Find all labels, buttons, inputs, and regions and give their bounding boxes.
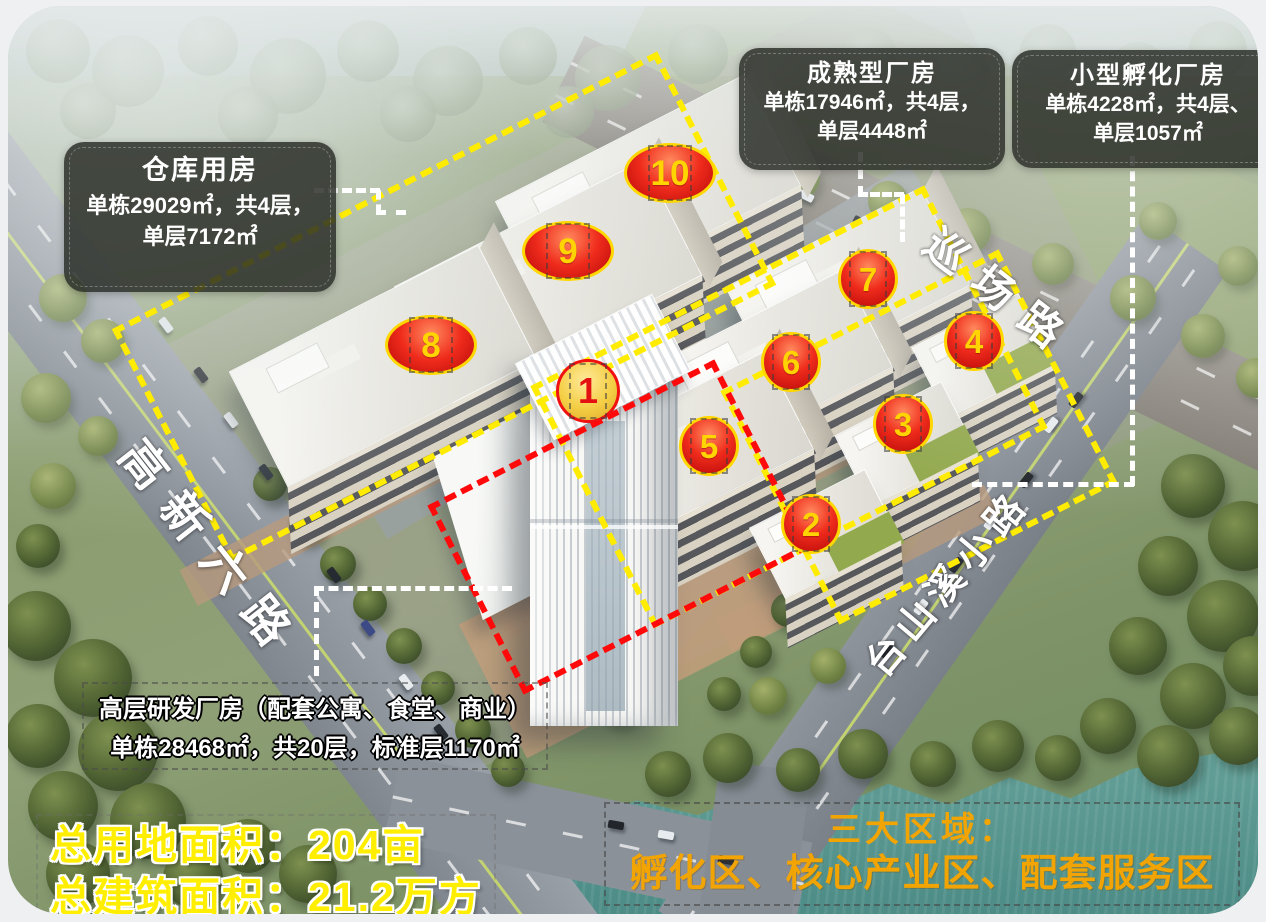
callout-connector xyxy=(314,586,512,591)
badge-number: 4 xyxy=(965,325,983,358)
tree xyxy=(26,19,90,83)
badge-number: 3 xyxy=(894,408,912,441)
zones-list: 孵化区、核心产业区、配套服务区 xyxy=(629,851,1214,899)
callout-connector xyxy=(314,586,319,676)
tree xyxy=(380,86,436,142)
badge-number: 7 xyxy=(859,263,877,296)
project-summary: 总用地面积：204亩 总建筑面积：21.2万方 xyxy=(36,814,496,914)
tree xyxy=(810,648,846,684)
badge-building-8: 8 xyxy=(385,315,477,375)
callout-line: 单栋28468㎡，共20层，标准层1170㎡ xyxy=(84,728,546,763)
tree xyxy=(668,24,728,84)
badge-building-5: 5 xyxy=(679,416,739,476)
zones-title: 三大区域： xyxy=(827,810,1017,851)
callout-connector xyxy=(900,194,905,242)
callout-title: 成熟型厂房 xyxy=(747,58,997,89)
callout-line: 单栋17946㎡，共4层， xyxy=(747,89,997,117)
tree xyxy=(499,27,557,85)
tree xyxy=(16,524,60,568)
tree xyxy=(1035,735,1081,781)
tree xyxy=(30,463,76,509)
tree xyxy=(703,733,753,783)
callout-title: 仓库用房 xyxy=(72,152,328,190)
callout-connector xyxy=(972,482,1134,487)
callout-line: 单栋4228㎡，共4层、 xyxy=(1020,91,1258,119)
callout-line: 高层研发厂房（配套公寓、食堂、商业） xyxy=(84,689,546,724)
tree xyxy=(1032,243,1074,285)
tree xyxy=(78,416,118,456)
tree xyxy=(910,741,956,787)
tree xyxy=(1138,536,1198,596)
callout-line: 单栋29029㎡，共4层， xyxy=(72,190,328,221)
tree xyxy=(776,748,820,792)
badge-number: 8 xyxy=(421,328,440,363)
badge-number: 10 xyxy=(651,156,690,191)
callout-connector xyxy=(1130,156,1135,486)
tree xyxy=(1137,725,1199,787)
callout-title: 小型孵化厂房 xyxy=(1020,60,1258,91)
tree xyxy=(21,373,71,423)
aerial-masterplan-rendering: 高新六路 巡场路 台山溪小路 1 2 3 4 5 6 7 8 9 10 xyxy=(8,6,1258,914)
tree xyxy=(838,729,888,779)
tree xyxy=(8,704,70,768)
callout-small-incubator: 小型孵化厂房 单栋4228㎡，共4层、 单层1057㎡ xyxy=(1012,50,1258,168)
badge-number: 1 xyxy=(578,373,598,409)
tree xyxy=(8,591,71,661)
tree xyxy=(1109,617,1167,675)
total-land-area: 总用地面积：204亩 xyxy=(50,820,482,872)
tree xyxy=(972,720,1024,772)
three-zones-note: 三大区域： 孵化区、核心产业区、配套服务区 xyxy=(604,802,1240,906)
tree xyxy=(1161,454,1225,518)
tree xyxy=(178,16,238,76)
callout-rd-tower: 高层研发厂房（配套公寓、食堂、商业） 单栋28468㎡，共20层，标准层1170… xyxy=(82,682,548,770)
total-floor-area: 总建筑面积：21.2万方 xyxy=(50,872,482,914)
badge-number: 5 xyxy=(700,430,718,463)
badge-building-2: 2 xyxy=(781,494,841,554)
badge-building-3: 3 xyxy=(873,394,933,454)
tree xyxy=(353,587,387,621)
badge-building-6: 6 xyxy=(761,332,821,392)
tree xyxy=(1218,246,1258,286)
callout-connector xyxy=(858,192,904,197)
tree xyxy=(218,86,278,146)
tree xyxy=(1181,314,1225,358)
callout-connector xyxy=(376,210,406,215)
badge-number: 6 xyxy=(782,346,800,379)
tree xyxy=(337,20,399,82)
badge-building-4: 4 xyxy=(944,311,1004,371)
tree xyxy=(1209,707,1258,765)
callout-line: 单层1057㎡ xyxy=(1020,120,1258,148)
tree xyxy=(1208,501,1258,571)
tree xyxy=(645,751,691,797)
badge-number: 2 xyxy=(802,508,820,541)
badge-building-1: 1 xyxy=(556,359,620,423)
tree xyxy=(1139,202,1177,240)
callout-warehouse: 仓库用房 单栋29029㎡，共4层， 单层7172㎡ xyxy=(64,142,336,292)
tree xyxy=(386,628,422,664)
tree xyxy=(1080,698,1136,754)
tree xyxy=(749,677,787,715)
callout-mature-factory: 成熟型厂房 单栋17946㎡，共4层， 单层4448㎡ xyxy=(739,48,1005,170)
callout-line: 单层4448㎡ xyxy=(747,118,997,146)
tree xyxy=(60,83,116,139)
badge-number: 9 xyxy=(558,234,577,269)
tree xyxy=(707,677,741,711)
badge-building-9: 9 xyxy=(522,221,614,281)
callout-line: 单层7172㎡ xyxy=(72,221,328,252)
badge-building-7: 7 xyxy=(838,249,898,309)
tree xyxy=(740,636,772,668)
badge-building-10: 10 xyxy=(624,143,716,203)
